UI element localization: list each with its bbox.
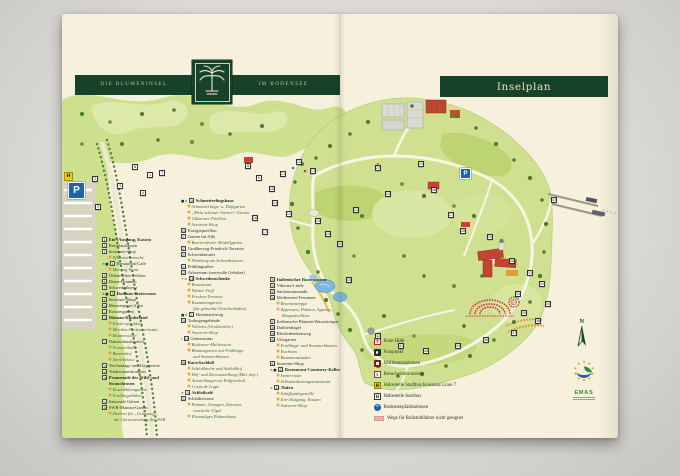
map-marker: 9 [256,175,262,181]
map-marker: 6 [132,164,138,170]
legend-item-number: 41 [270,361,275,366]
map-marker: 25 [418,161,424,167]
map-marker-number: 31 [528,271,532,275]
map-marker-number: 4 [142,191,144,195]
map-marker-number: 10 [270,187,274,191]
map-marker-number: 14 [273,201,277,205]
symbol-icon [374,371,381,378]
map-marker: 10 [269,186,275,192]
boat [586,197,598,203]
legend-item-icons: ×■ [270,367,277,373]
compass-north-label: N [573,318,591,325]
map-marker-number: 12 [297,160,301,164]
mainau-logo [192,60,232,104]
map-marker-number: 1 [149,173,151,177]
map-marker: 16 [252,215,258,221]
legend-item-number: 9 [102,297,107,302]
legend-column-3: 33 Italienischer Rosengarten 34 Viktoria… [270,277,377,409]
map-marker: 5 [95,204,101,210]
legend-item-icons: × [270,385,273,391]
emas-logo-icon [567,359,601,385]
legend-item-label: Ehemaliges Palmenhaus [188,414,236,420]
map-marker: 35 [521,310,527,316]
map-marker: 33 [515,291,521,297]
map-marker-number: 17 [263,230,267,234]
legend-item-label: Souvenir-Shop [277,403,307,409]
symbol-icon [374,404,381,411]
legend-column-1: 1 Ein-/Ausgang, Kassen 2 Reisebuskassen … [102,237,182,423]
legend-item-number: 14 [102,363,107,368]
map-marker: 2 [92,176,98,182]
map-marker: 34 [545,301,551,307]
map-marker: 20 [325,231,331,237]
map-marker: 30 [509,258,515,264]
legend-item-number: 38 [270,325,275,330]
map-marker: 40 [423,348,429,354]
map-marker-number: 27 [449,213,453,217]
butterfly-house-dome [309,210,319,217]
compass: N [573,318,591,354]
map-marker: 18 [346,277,352,283]
map-marker: 41 [398,343,404,349]
parking-sign-mainland: P [68,182,85,199]
map-marker: 27 [448,212,454,218]
map-marker-number: 16 [253,216,257,220]
map-marker: 19 [315,218,321,224]
inselplan-banner: Inselplan [440,76,608,97]
symbol-icon [374,416,384,421]
legend-item: Souvenir-Shop [270,403,377,409]
parking-lot [62,180,96,330]
legend-item: Ehemaliges Palmenhaus [181,414,293,420]
legend-item-number: 20 [181,228,186,233]
map-marker: 32 [539,281,545,287]
parking-sign-island: P [460,168,471,179]
legend-item-label: die Gartensendung des SWR [114,417,165,423]
map-marker-number: 5 [97,205,99,209]
legend-item-number: 34 [270,283,275,288]
legend-item-number: 40 [270,337,275,342]
symbol-legend-row: Haltestelle Inselbus [374,391,534,402]
legend-item-icons: i [181,336,182,342]
symbol-label: Haltestelle Stadtbus Konstanz Linie 7 [384,383,456,388]
legend-item-number: 28 [181,318,186,323]
legend-item-number: 5 [102,273,107,278]
map-marker: 24 [385,191,391,197]
map-marker: 26 [431,187,437,193]
map-marker: 13 [310,168,316,174]
legend-item-number: 4 [110,261,115,266]
map-marker: 3 [117,183,123,189]
map-marker: 11 [280,171,286,177]
map-marker-number: 38 [484,338,488,342]
map-marker: 7 [159,170,165,176]
emas-fine-print [573,397,595,400]
legend-item-number: 16 [102,375,107,380]
map-marker: 14 [272,200,278,206]
map-marker: 38 [483,337,489,343]
legend-item-number: 33 [270,277,275,282]
map-marker-number: 11 [281,172,285,176]
legend-item-number: 6 [102,279,107,284]
map-marker: 39 [455,343,461,349]
map-marker-number: 39 [456,344,460,348]
map-marker: 29 [487,234,493,240]
legend-item-icons: × [181,390,184,396]
torbogen-building [461,222,470,227]
map-marker: 36 [535,318,541,324]
map-marker: 22 [353,207,359,213]
symbol-legend-row: Mülltrennstationen [374,358,534,369]
symbol-label: Bodenseepfadstationen [384,405,429,410]
legend-item-icons: ■× [181,198,188,204]
symbol-icon [374,360,381,367]
map-marker-number: 19 [316,219,320,223]
map-marker: 15 [286,211,292,217]
map-marker-number: 35 [522,311,526,315]
map-marker-number: 18 [347,278,351,282]
brand-text-right: IM BODENSEE [227,82,340,87]
map-marker-number: 33 [516,292,520,296]
legend-item-number: 29 [184,336,189,341]
map-marker-number: 43 [552,198,556,202]
map-marker-number: 40 [424,349,428,353]
symbol-label: Mülltrennstationen [384,361,421,366]
map-marker: 21 [337,241,343,247]
map-marker: 43 [551,197,557,203]
map-marker-number: 2 [94,177,96,181]
map-marker-number: 15 [287,212,291,216]
symbol-label: Fotopunkt [384,350,404,355]
brand-text-left: DIE BLUMENINSEL [75,82,193,87]
legend-item-number: 31 [185,390,190,395]
legend-item-number: 7 [102,285,107,290]
legend-item-number: 36 [270,295,275,300]
map-marker-number: 36 [536,319,540,323]
legend-item-number: 25 [181,270,186,275]
map-marker-number: 32 [540,282,544,286]
symbol-icon [374,338,381,345]
compass-needle-icon [576,325,588,349]
map-marker: 31 [527,270,533,276]
legend-item-number: 32 [181,396,186,401]
legend-item-number: 1 [102,237,107,242]
legend-item-number: 19 [189,198,194,203]
map-marker: 42 [375,333,381,339]
legend-item-number: 27 [189,312,194,317]
legend-item-number: 17 [102,399,107,404]
legend-item-number: 39 [270,331,275,336]
map-marker-number: 42 [376,334,380,338]
symbol-label: Besucherinformation [384,372,425,377]
map-marker: 1 [147,172,153,178]
map-marker-number: 20 [326,232,330,236]
symbol-legend: Erste Hilfe Fotopunkt Mülltrennstationen… [374,336,534,424]
legend-item-number: 15 [102,369,107,374]
symbol-legend-row: Bodenseepfadstationen [374,402,534,413]
legend-item-number: 43 [274,385,279,390]
map-marker-number: 6 [134,165,136,169]
map-marker-number: 29 [488,235,492,239]
map-marker-number: 26 [432,188,436,192]
legend-item-icons: +× [181,276,187,282]
map-marker-number: 34 [546,302,550,306]
legend-item-label: Promenade der Wild- und Strauchrosen [109,375,182,387]
map-marker: 23 [375,165,381,171]
legend-item-number: 24 [181,264,186,269]
map-marker-number: 25 [419,162,423,166]
legend-item-number: 26 [189,276,194,281]
legend-item-number: 23 [181,252,186,257]
map-marker-number: 22 [354,208,358,212]
legend-item-number: 13 [102,339,107,344]
map-marker-number: 13 [311,169,315,173]
map-marker: 4 [140,190,146,196]
emas-certification: EMAS [566,359,602,401]
legend-item-number: 18 [102,405,107,410]
brochure-spread: DIE BLUMENINSEL IM BODENSEE Inselplan [62,14,618,438]
emas-label: EMAS [566,390,602,396]
symbol-label: Haltestelle Inselbus [384,394,422,399]
legend-item-number: 42 [278,367,283,372]
map-marker: 28 [460,228,466,234]
map-marker: 12 [296,159,302,165]
map-marker-number: 28 [461,229,465,233]
legend-item-number: 21 [181,234,186,239]
legend-item-number: 30 [181,360,186,365]
map-marker: 8 [245,163,251,169]
legend-item-number: 12 [102,315,107,320]
map-marker-number: 41 [399,344,403,348]
map-marker-number: 3 [119,184,121,188]
legend-item-number: 2 [102,243,107,248]
symbol-icon [374,349,381,356]
symbol-legend-row: Haltestelle Stadtbus Konstanz Linie 7 [374,380,534,391]
legend-item-number: 22 [181,246,186,251]
bus-stop-sign: H [64,172,73,181]
map-marker-number: 24 [386,192,390,196]
legend-item: die Gartensendung des SWR [102,417,182,423]
legend-item-number: 10 [102,303,107,308]
photo-background: DIE BLUMENINSEL IM BODENSEE Inselplan [0,0,680,476]
map-marker-number: 23 [376,166,380,170]
harbor [548,194,618,216]
symbol-icon [374,393,381,400]
legend-item: 16 Promenade der Wild- und Strauchrosen [102,375,182,387]
map-marker: 17 [262,229,268,235]
legend-item-number: 8 [110,291,115,296]
map-marker-number: 9 [258,176,260,180]
legend-item-number: 35 [270,289,275,294]
symbol-icon [374,382,381,389]
symbol-label: Wege für Rollstuhlfahrer nicht geeignet [387,416,463,421]
map-marker: 37 [511,330,517,336]
legend-item-number: 11 [102,309,107,314]
map-marker-number: 37 [512,331,516,335]
symbol-legend-row: Besucherinformation [374,369,534,380]
legend-item-icons: ×■ [102,261,109,267]
symbol-legend-row: Wege für Rollstuhlfahrer nicht geeignet [374,413,534,424]
map-marker-number: 30 [510,259,514,263]
plan-title: Inselplan [497,81,551,93]
legend-item-number: 37 [270,319,275,324]
map-marker-number: 8 [247,164,249,168]
legend-item-number: 3 [102,249,107,254]
map-marker-number: 7 [161,171,163,175]
logo-frame [195,63,230,102]
map-marker-number: 21 [338,242,342,246]
